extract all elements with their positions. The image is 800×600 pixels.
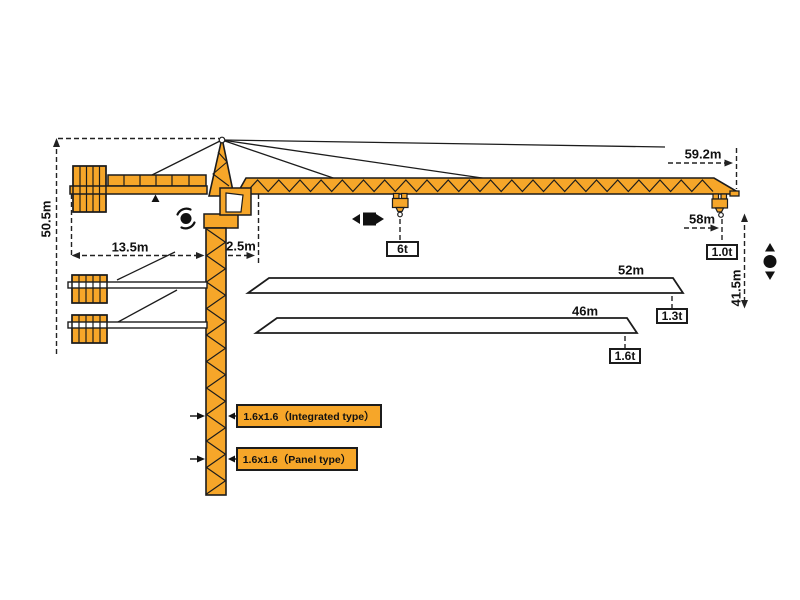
hoist-icon (764, 243, 777, 280)
mast-offset-label: 2.5m (226, 239, 256, 254)
jib-46m-label: 46m (572, 304, 598, 319)
counter-jib-bar-1 (68, 282, 207, 288)
crane-dimension-diagram: 50.5m 13.5m 2.5m 59.2m 58m 41.5m 52m 46m… (0, 0, 800, 600)
tower-mast (206, 228, 226, 495)
jib-option-52m (248, 278, 683, 293)
capacity-52m-box: 1.3t (656, 308, 688, 324)
apex-pulley (219, 137, 225, 143)
cab-window (226, 193, 243, 212)
mast-integrated-box: 1.6x1.6（Integrated type） (236, 404, 382, 428)
mast-panel-box: 1.6x1.6（Panel type） (236, 447, 358, 471)
jib-52m-label: 52m (618, 263, 644, 278)
counter-jib-label: 13.5m (112, 240, 149, 255)
jib-length-label: 59.2m (685, 147, 722, 162)
jib-tip-bracket (730, 191, 739, 196)
counter-jib-beam (70, 186, 207, 194)
trolley-travel-icon (352, 213, 384, 226)
hook-mid (398, 212, 403, 217)
counter-jib-platform (108, 175, 206, 186)
counterweight-options (68, 275, 207, 343)
counter-jib-bar-2 (68, 322, 207, 328)
mid-capacity-box: 6t (386, 241, 419, 257)
main-jib (237, 178, 739, 196)
tip-capacity-box: 1.0t (706, 244, 738, 260)
capacity-46m-box: 1.6t (609, 348, 641, 364)
hook-tip (719, 213, 724, 218)
hook-height-label: 41.5m (729, 270, 744, 307)
tower-apex (209, 137, 234, 196)
hook-radius-label: 58m (689, 212, 715, 227)
slewing-rotation-icon (178, 209, 195, 229)
tower-height-label: 50.5m (39, 201, 54, 238)
crane-drawing (0, 0, 800, 600)
slewing-platform (204, 214, 238, 228)
jib-length-options (248, 278, 683, 333)
counter-jib (70, 166, 207, 212)
jib-option-46m (256, 318, 637, 333)
counter-jib-pointer-icon (152, 195, 160, 203)
trolley-mid (393, 194, 409, 217)
